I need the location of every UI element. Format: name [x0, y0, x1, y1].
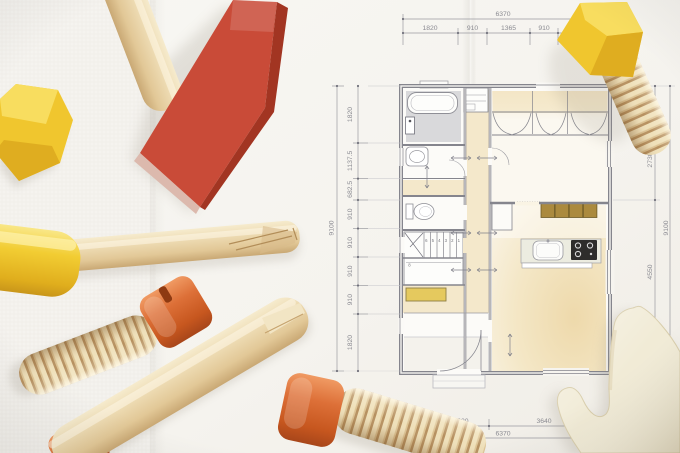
photo-canvas: 6 5 4 3 2 1 8	[0, 0, 680, 453]
photo-vignette	[0, 0, 680, 453]
photo-blueprint-and-toy-tools: 6 5 4 3 2 1 8	[0, 0, 680, 453]
